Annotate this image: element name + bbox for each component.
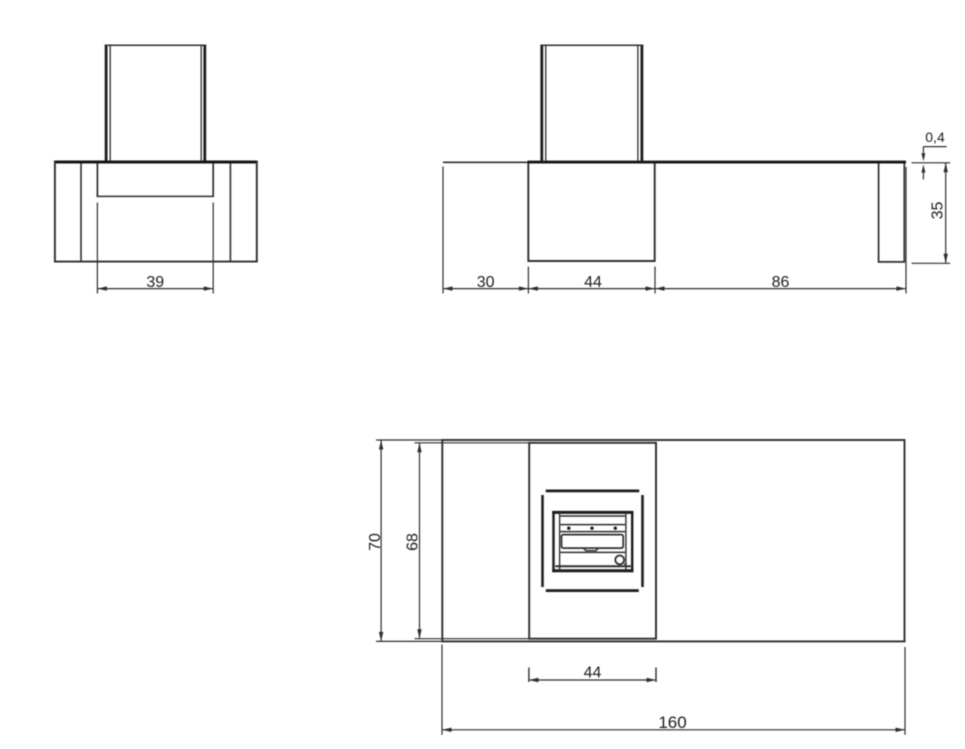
svg-text:35: 35	[929, 202, 946, 220]
svg-text:70: 70	[367, 533, 384, 551]
svg-text:44: 44	[584, 665, 602, 682]
svg-text:30: 30	[477, 274, 495, 291]
svg-text:160: 160	[658, 713, 686, 732]
svg-text:44: 44	[584, 274, 602, 291]
svg-text:68: 68	[404, 533, 421, 551]
svg-text:86: 86	[772, 274, 790, 291]
svg-text:0,4: 0,4	[925, 129, 945, 145]
svg-text:39: 39	[146, 274, 164, 291]
